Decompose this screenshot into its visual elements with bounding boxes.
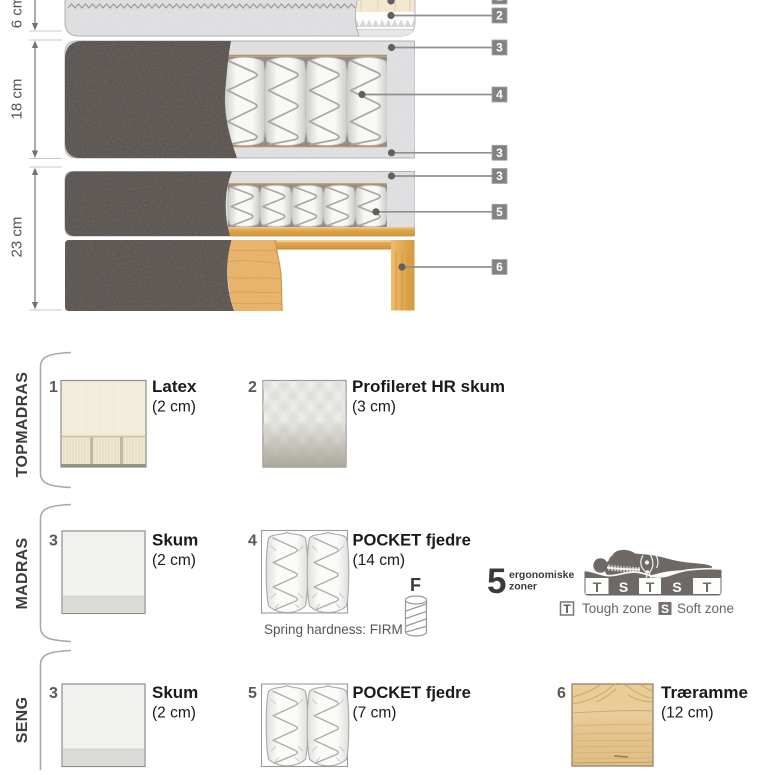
svg-text:3: 3: [496, 41, 503, 55]
svg-text:1: 1: [49, 379, 58, 396]
svg-text:T: T: [646, 579, 655, 595]
svg-text:Spring hardness: FIRM: Spring hardness: FIRM: [264, 622, 403, 637]
svg-text:6 cm: 6 cm: [9, 0, 26, 28]
svg-text:3: 3: [496, 146, 503, 160]
svg-text:ergonomiske: ergonomiske: [509, 569, 575, 581]
svg-text:5: 5: [496, 205, 503, 219]
svg-text:23 cm: 23 cm: [9, 217, 26, 258]
svg-text:1: 1: [496, 0, 503, 4]
svg-text:Latex: Latex: [152, 377, 197, 396]
svg-text:(3 cm): (3 cm): [352, 399, 396, 416]
svg-text:S: S: [661, 602, 669, 616]
svg-text:S: S: [619, 579, 628, 595]
svg-text:6: 6: [557, 685, 566, 702]
svg-text:zoner: zoner: [509, 581, 537, 593]
svg-text:(2 cm): (2 cm): [152, 705, 196, 722]
svg-text:3: 3: [496, 169, 503, 183]
svg-text:(12 cm): (12 cm): [661, 705, 714, 722]
svg-text:T: T: [593, 579, 602, 595]
svg-text:Tough zone: Tough zone: [582, 601, 652, 616]
svg-text:(14 cm): (14 cm): [353, 552, 406, 569]
svg-text:SENG: SENG: [14, 697, 31, 744]
svg-text:Skum: Skum: [152, 531, 198, 550]
svg-text:F: F: [410, 575, 421, 595]
svg-text:5: 5: [248, 685, 257, 702]
svg-text:Soft zone: Soft zone: [677, 601, 734, 616]
svg-text:18 cm: 18 cm: [9, 79, 26, 120]
svg-text:(2 cm): (2 cm): [152, 399, 196, 416]
svg-text:(2 cm): (2 cm): [152, 552, 196, 569]
svg-text:POCKET fjedre: POCKET fjedre: [353, 532, 471, 550]
svg-text:POCKET fjedre: POCKET fjedre: [353, 684, 471, 702]
svg-text:3: 3: [49, 685, 58, 702]
svg-text:2: 2: [248, 379, 257, 396]
svg-text:Skum: Skum: [152, 683, 198, 702]
svg-text:5: 5: [487, 562, 506, 601]
svg-text:6: 6: [496, 260, 503, 274]
svg-text:4: 4: [248, 533, 257, 550]
svg-text:T: T: [563, 602, 571, 616]
svg-text:S: S: [672, 579, 681, 595]
svg-text:Profileret HR skum: Profileret HR skum: [352, 377, 505, 396]
svg-text:4: 4: [496, 88, 503, 102]
svg-text:TOPMADRAS: TOPMADRAS: [14, 372, 31, 478]
svg-text:3: 3: [49, 533, 58, 550]
svg-text:T: T: [703, 579, 712, 595]
svg-text:Træramme: Træramme: [661, 683, 748, 702]
svg-text:(7 cm): (7 cm): [353, 705, 397, 722]
svg-text:2: 2: [496, 9, 503, 23]
svg-text:MADRAS: MADRAS: [14, 537, 31, 609]
